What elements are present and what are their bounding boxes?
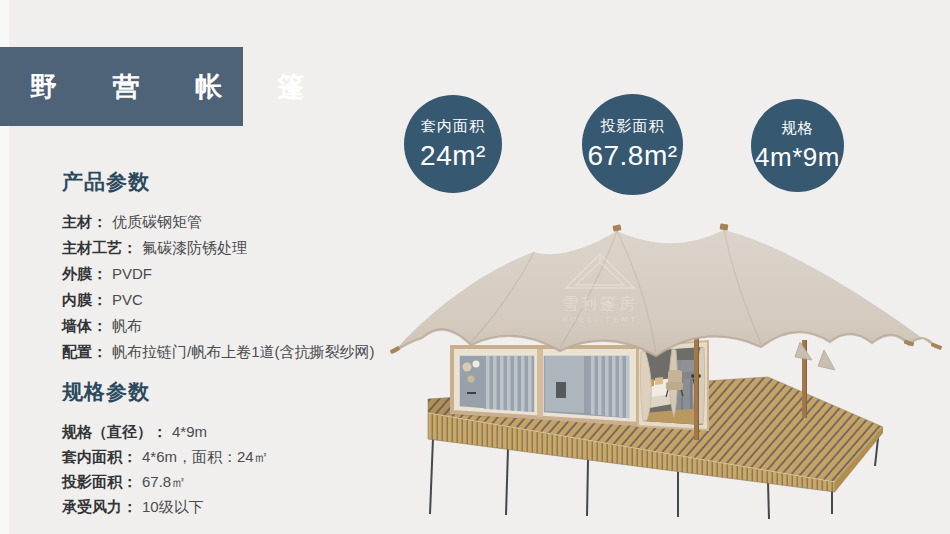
badge-inner-area: 套内面积 24m² [404, 95, 502, 193]
param-value: 氟碳漆防锈处理 [142, 239, 247, 256]
param-row: 投影面积：67.8㎡ [62, 469, 269, 494]
spec-params-section: 规格参数 规格（直径）：4*9m 套内面积：4*6m，面积：24㎡ 投影面积：6… [62, 378, 269, 519]
canopy: 雪利篷房 XUELI TENT [390, 223, 943, 356]
param-label: 配置： [62, 343, 107, 360]
param-value: 67.8㎡ [142, 473, 186, 490]
param-label: 承受风力： [62, 498, 137, 515]
param-label: 墙体： [62, 317, 107, 334]
cabin-window-right [537, 349, 630, 419]
product-params-list: 主材：优质碳钢矩管 主材工艺：氟碳漆防锈处理 外膜：PVDF 内膜：PVC 墙体… [62, 209, 375, 365]
param-label: 外膜： [62, 265, 107, 282]
wall-plate-decor [468, 376, 475, 383]
param-value: 4*6m，面积：24㎡ [142, 448, 269, 465]
badge-size-label: 规格 [782, 119, 814, 138]
param-label: 规格（直径）： [62, 423, 167, 440]
title-block: 野 营 帐 篷 [0, 47, 243, 126]
param-value: PVDF [112, 265, 152, 282]
tent-render-image: 雪利篷房 XUELI TENT [388, 214, 948, 534]
param-row: 主材工艺：氟碳漆防锈处理 [62, 235, 375, 261]
param-row: 墙体：帆布 [62, 313, 375, 339]
page-title: 野 营 帐 篷 [0, 69, 329, 105]
param-label: 主材： [62, 213, 107, 230]
badge-projection-area-value: 67.8m² [587, 140, 677, 172]
param-value: 帆布 [112, 317, 142, 334]
wall-plate-decor [473, 361, 480, 368]
spec-params-list: 规格（直径）：4*9m 套内面积：4*6m，面积：24㎡ 投影面积：67.8㎡ … [62, 419, 269, 519]
product-params-heading: 产品参数 [62, 168, 375, 196]
wall-plate-decor [463, 363, 472, 372]
param-label: 投影面积： [62, 473, 137, 490]
spec-params-heading: 规格参数 [62, 378, 269, 406]
param-row: 主材：优质碳钢矩管 [62, 209, 375, 235]
badge-projection-area-label: 投影面积 [601, 117, 665, 136]
param-label: 套内面积： [62, 448, 137, 465]
wall-rack [467, 392, 476, 394]
param-row: 内膜：PVC [62, 287, 375, 313]
bed-pillow [655, 377, 663, 385]
poster-page: 野 营 帐 篷 套内面积 24m² 投影面积 67.8m² 规格 4m*9m 产… [0, 0, 950, 534]
param-label: 内膜： [62, 291, 107, 308]
bathroom-fixture [556, 382, 566, 398]
param-row: 规格（直径）：4*9m [62, 419, 269, 444]
param-value: PVC [112, 291, 143, 308]
param-row: 承受风力：10级以下 [62, 494, 269, 519]
param-row: 外膜：PVDF [62, 261, 375, 287]
param-value: 帆布拉链门/帆布上卷1道(含抗撕裂纱网) [112, 343, 375, 360]
badge-size: 规格 4m*9m [751, 99, 844, 192]
watermark-cn: 雪利篷房 [562, 295, 638, 312]
product-params-section: 产品参数 主材：优质碳钢矩管 主材工艺：氟碳漆防锈处理 外膜：PVDF 内膜：P… [62, 168, 375, 365]
badge-size-value: 4m*9m [755, 142, 840, 173]
param-row: 配置：帆布拉链门/帆布上卷1道(含抗撕裂纱网) [62, 339, 375, 365]
param-value: 10级以下 [142, 498, 204, 515]
badge-inner-area-value: 24m² [420, 140, 486, 172]
window-mullion [537, 349, 543, 417]
param-value: 优质碳钢矩管 [112, 213, 202, 230]
badge-projection-area: 投影面积 67.8m² [582, 94, 683, 195]
param-label: 主材工艺： [62, 239, 137, 256]
canopy-flaps [795, 342, 835, 370]
param-row: 套内面积：4*6m，面积：24㎡ [62, 444, 269, 469]
cabin-window-left [459, 355, 535, 413]
watermark-en: XUELI TENT [562, 315, 638, 324]
param-value: 4*9m [172, 423, 207, 440]
badge-inner-area-label: 套内面积 [421, 117, 485, 136]
